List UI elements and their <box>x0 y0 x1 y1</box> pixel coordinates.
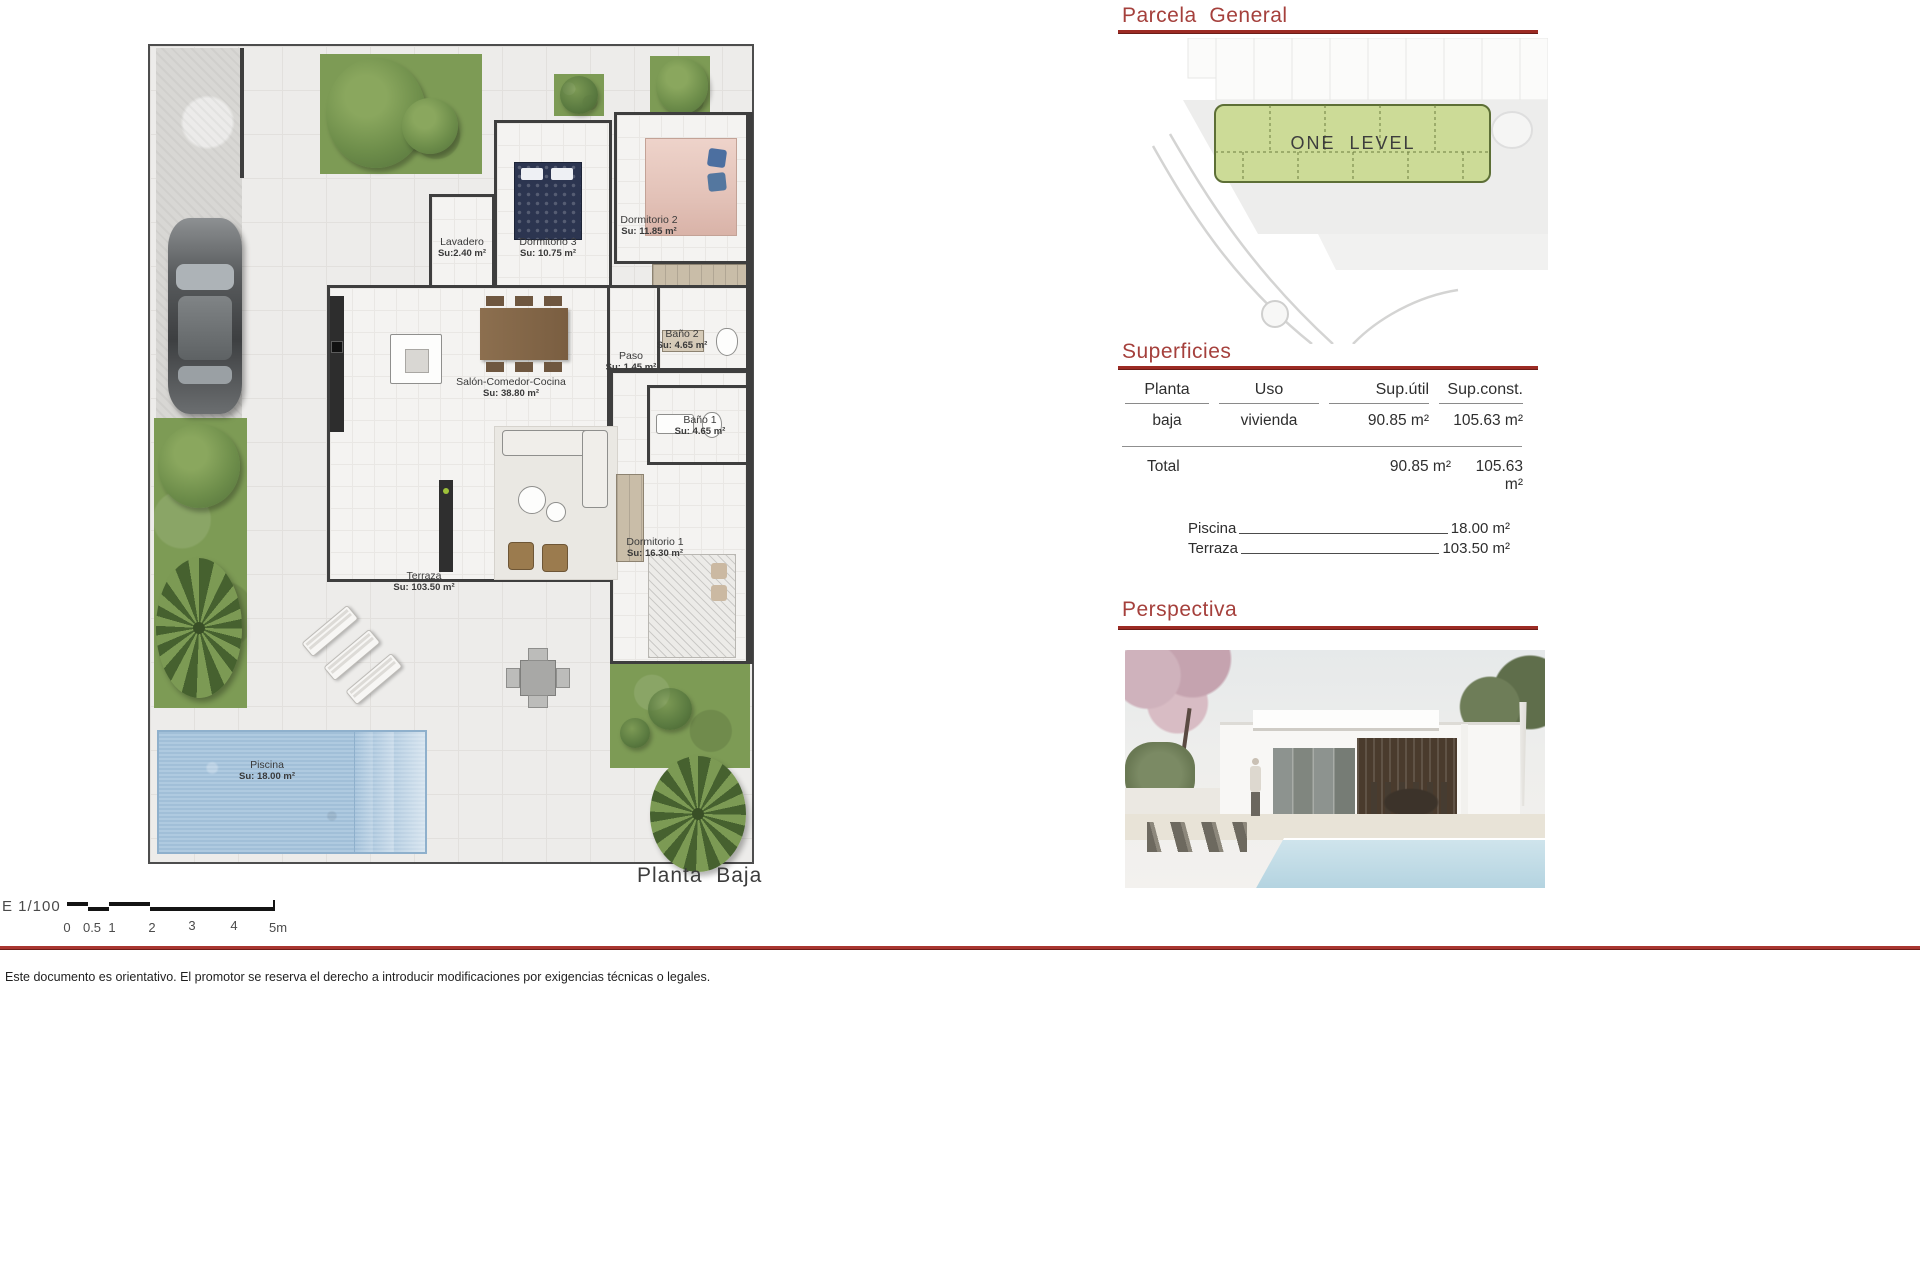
sofa-right <box>582 430 608 508</box>
scale-label: E 1/100 <box>2 898 61 915</box>
label-bano1: Baño 1Su: 4.65 m² <box>650 414 750 438</box>
superficies-title-rule <box>1118 366 1538 370</box>
extra-piscina-value: 18.00 m² <box>1451 520 1510 537</box>
site-knob <box>1492 112 1532 148</box>
dining-chairs-top <box>486 296 562 306</box>
render-glass-doors <box>1273 748 1355 816</box>
bed-dorm3 <box>514 162 582 240</box>
footer-rule <box>0 946 1920 950</box>
bush-bottom-2 <box>620 718 650 748</box>
closet-dorm2 <box>652 264 750 286</box>
coffee-table-small <box>546 502 566 522</box>
cell-sup-util: 90.85 m² <box>1329 412 1429 430</box>
parcela-title-rule <box>1118 30 1538 34</box>
label-salon: Salón-Comedor-CocinaSu: 38.80 m² <box>431 376 591 400</box>
floor-plan-plot: LavaderoSu:2.40 m² Dormitorio 3Su: 10.75… <box>148 44 754 864</box>
extra-terraza: Terraza 103.50 m² <box>1188 540 1510 557</box>
parcela-title: Parcela General <box>1122 4 1288 28</box>
label-lavadero: LavaderoSu:2.40 m² <box>422 236 502 260</box>
superficies-total-rule <box>1122 446 1522 447</box>
coffee-table <box>518 486 546 514</box>
superficies-header-row: Planta Uso Sup.útil Sup.const. <box>1125 381 1523 404</box>
render-person <box>1247 758 1263 816</box>
car-rear-window <box>178 366 232 384</box>
leader-line <box>1239 533 1447 534</box>
render-porch-post <box>1461 724 1468 816</box>
palm-bottom-right <box>650 756 746 872</box>
car <box>168 218 242 414</box>
label-dorm2: Dormitorio 2Su: 11.85 m² <box>599 214 699 238</box>
cell-sup-const: 105.63 m² <box>1439 412 1523 430</box>
armchair <box>508 542 534 570</box>
armchair <box>542 544 568 572</box>
label-piscina: PiscinaSu: 18.00 m² <box>217 759 317 783</box>
total-sup-util: 90.85 m² <box>1351 458 1451 494</box>
label-dorm1: Dormitorio 1Su: 16.30 m² <box>605 536 705 560</box>
scale-end-tick <box>273 900 275 911</box>
render-loungers <box>1147 822 1247 852</box>
label-paso: PasoSu: 1.45 m² <box>601 350 661 374</box>
plan-sheet-page: LavaderoSu:2.40 m² Dormitorio 3Su: 10.75… <box>0 0 1920 1280</box>
render-pool <box>1255 838 1545 888</box>
superficies-data-row: baja vivienda 90.85 m² 105.63 m² <box>1125 412 1523 430</box>
extra-piscina-label: Piscina <box>1188 520 1236 537</box>
scale-segment <box>88 907 109 911</box>
scale-bar: E 1/100 0 0.5 1 2 3 4 5m <box>0 896 320 944</box>
kitchen-hob <box>332 342 342 352</box>
site-plot-label: ONE LEVEL <box>1290 133 1415 153</box>
label-dorm3: Dormitorio 3Su: 10.75 m² <box>498 236 598 260</box>
col-header-sup-util: Sup.útil <box>1329 381 1429 404</box>
label-terraza: TerrazaSu: 103.50 m² <box>374 570 474 594</box>
scale-tick: 0.5 <box>83 920 101 935</box>
tree-top-right <box>656 58 708 114</box>
superficies-title: Superficies <box>1122 340 1231 364</box>
extra-terraza-value: 103.50 m² <box>1442 540 1510 557</box>
col-header-uso: Uso <box>1219 381 1319 404</box>
outdoor-dining-set <box>506 648 568 708</box>
scale-segment <box>150 907 275 911</box>
superficies-extras: Piscina 18.00 m² Terraza 103.50 m² <box>1188 520 1510 557</box>
footer-disclaimer: Este documento es orientativo. El promot… <box>5 970 710 984</box>
site-plot-grid <box>1188 38 1548 100</box>
extra-terraza-label: Terraza <box>1188 540 1238 557</box>
scale-tick: 4 <box>230 918 237 933</box>
site-parcel-band-2 <box>1318 234 1548 270</box>
scale-segment <box>109 902 150 906</box>
tree-top-large-2 <box>402 98 458 154</box>
scale-segment <box>67 902 88 906</box>
scale-tick: 2 <box>148 920 155 935</box>
cell-uso: vivienda <box>1219 412 1319 430</box>
floor-plan-title: Planta Baja <box>637 864 762 888</box>
cell-planta: baja <box>1125 412 1209 430</box>
site-roundabout <box>1262 301 1288 327</box>
perspective-render <box>1125 650 1545 888</box>
superficies-total-row: Total 90.85 m² 105.63 m² <box>1125 458 1523 494</box>
label-bano2: Baño 2Su: 4.65 m² <box>632 328 732 352</box>
perspectiva-title: Perspectiva <box>1122 598 1237 622</box>
car-windshield <box>176 264 234 290</box>
kitchen-counter <box>330 296 344 432</box>
scale-tick: 3 <box>188 918 195 933</box>
col-header-sup-const: Sup.const. <box>1439 381 1523 404</box>
scale-tick: 0 <box>63 920 70 935</box>
tree-left-middle <box>158 424 240 508</box>
site-plan-map: ONE LEVEL <box>1128 38 1548 344</box>
col-header-planta: Planta <box>1125 381 1209 404</box>
palm-left <box>156 558 242 698</box>
pool-steps <box>354 732 425 852</box>
extra-piscina: Piscina 18.00 m² <box>1188 520 1510 537</box>
driveway-wall <box>240 48 244 178</box>
house-east-wall <box>746 112 753 664</box>
leader-line <box>1241 553 1439 554</box>
dining-table <box>480 308 568 360</box>
bush-top-center <box>560 76 598 114</box>
render-roof-overhang <box>1253 710 1439 728</box>
scale-tick: 5m <box>269 920 287 935</box>
car-roof <box>178 296 232 360</box>
total-sup-const: 105.63 m² <box>1461 458 1523 494</box>
render-patio-furniture <box>1371 782 1451 816</box>
perspectiva-title-rule <box>1118 626 1538 630</box>
total-label: Total <box>1125 458 1231 494</box>
dining-chairs-bottom <box>486 362 562 372</box>
pool <box>157 730 427 854</box>
tv-console <box>439 480 453 572</box>
bush-bottom-1 <box>648 688 692 730</box>
bed-dorm1 <box>648 554 736 658</box>
scale-tick: 1 <box>108 920 115 935</box>
